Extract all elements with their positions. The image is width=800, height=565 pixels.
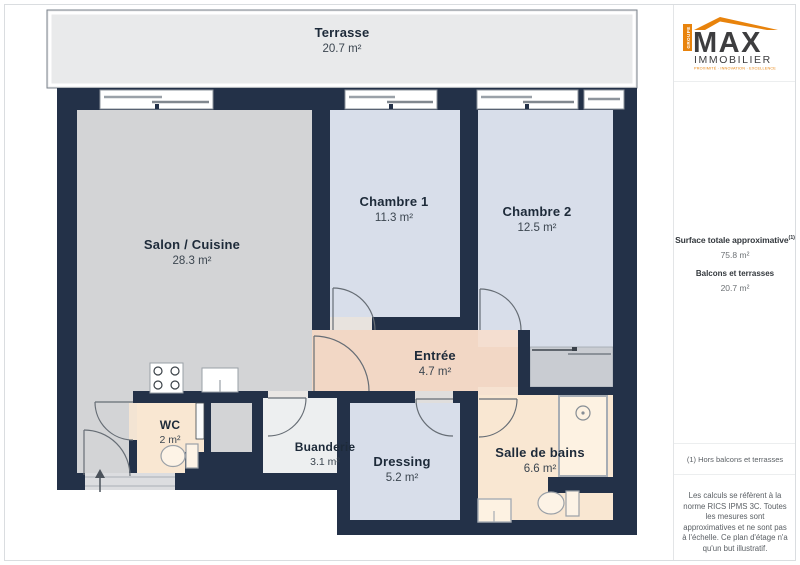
toilet-icon xyxy=(538,491,579,516)
stove-icon xyxy=(150,363,183,393)
room-area: 28.3 m² xyxy=(144,255,240,267)
max-immobilier-logo: GROUPE MAX IMMOBILIER PROXIMITÉ · INNOVA… xyxy=(683,14,787,72)
logo-tagline-text: PROXIMITÉ · INNOVATION · EXCELLENCE xyxy=(694,66,776,71)
room-area: 20.7 m² xyxy=(315,43,370,55)
room-area: 3.1 m² xyxy=(295,456,355,468)
kitchen-sink-icon xyxy=(202,368,238,392)
room-name: WC xyxy=(160,418,181,432)
room-area: 5.2 m² xyxy=(373,472,430,484)
window-icons xyxy=(100,90,624,109)
room-name: Dressing xyxy=(373,454,430,469)
window xyxy=(345,90,437,109)
surface-summary: Surface totale approximative(1) 75.8 m² … xyxy=(674,235,796,293)
room-label-buanderie: Buanderie 3.1 m² xyxy=(295,440,355,468)
balcony-title: Balcons et terrasses xyxy=(674,269,796,278)
room-name: Chambre 1 xyxy=(360,194,429,209)
window xyxy=(584,90,624,109)
door-leaf xyxy=(196,403,204,439)
room-label-terrasse: Terrasse 20.7 m² xyxy=(315,25,370,55)
room-area: 12.5 m² xyxy=(503,222,572,234)
footnote: (1) Hors balcons et terrasses xyxy=(674,443,796,475)
surface-value: 75.8 m² xyxy=(674,250,796,260)
room-label-sdb: Salle de bains 6.6 m² xyxy=(495,445,585,475)
info-sidebar: GROUPE MAX IMMOBILIER PROXIMITÉ · INNOVA… xyxy=(673,5,796,560)
room-label-dressing: Dressing 5.2 m² xyxy=(373,454,430,484)
logo-sub-text: IMMOBILIER xyxy=(694,54,772,66)
room-area: 6.6 m² xyxy=(495,463,585,475)
floor-plan xyxy=(0,0,660,565)
room-name: Chambre 2 xyxy=(503,204,572,219)
room-area: 2 m² xyxy=(160,434,181,446)
room-name: Salon / Cuisine xyxy=(144,237,240,252)
disclaimer-text: Les calculs se réfèrent à la norme RICS … xyxy=(681,491,789,554)
room-label-salon: Salon / Cuisine 28.3 m² xyxy=(144,237,240,267)
room-area: 4.7 m² xyxy=(414,366,456,378)
room-area: 11.3 m² xyxy=(360,212,429,224)
room-label-chambre1: Chambre 1 11.3 m² xyxy=(360,194,429,224)
room-name: Terrasse xyxy=(315,25,370,40)
surface-title: Surface totale approximative(1) xyxy=(674,235,796,245)
room-label-entree: Entrée 4.7 m² xyxy=(414,348,456,378)
room-name: Buanderie xyxy=(295,440,355,454)
room-name: Entrée xyxy=(414,348,456,363)
floorplan-page: Terrasse 20.7 m² Salon / Cuisine 28.3 m²… xyxy=(0,0,800,565)
washbasin-icon xyxy=(478,499,511,522)
room-label-wc: WC 2 m² xyxy=(160,418,181,446)
window xyxy=(100,90,213,109)
logo-group-text: GROUPE xyxy=(686,26,691,48)
window xyxy=(477,90,578,109)
legal-section: Les calculs se réfèrent à la norme RICS … xyxy=(674,473,796,565)
surface-footnote-ref: (1) xyxy=(788,235,794,241)
toilet-icon xyxy=(161,444,198,468)
agency-logo: GROUPE MAX IMMOBILIER PROXIMITÉ · INNOVA… xyxy=(674,5,796,82)
surface-title-text: Surface totale approximative xyxy=(675,235,788,245)
room-name: Salle de bains xyxy=(495,445,585,460)
balcony-value: 20.7 m² xyxy=(674,283,796,293)
room-label-chambre2: Chambre 2 12.5 m² xyxy=(503,204,572,234)
